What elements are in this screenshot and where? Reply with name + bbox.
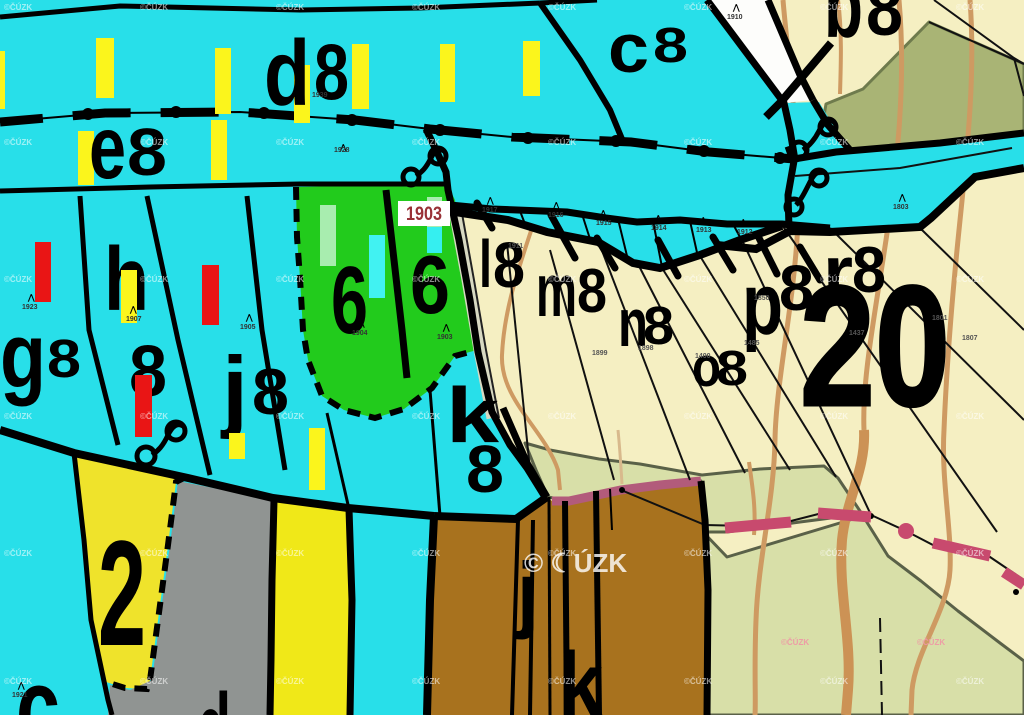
- svg-text:1437: 1437: [849, 330, 865, 337]
- svg-text:1903: 1903: [437, 334, 453, 341]
- svg-text:©ČÚZK: ©ČÚZK: [548, 275, 576, 284]
- svg-text:©ČÚZK: ©ČÚZK: [140, 549, 168, 558]
- svg-text:⋀: ⋀: [699, 216, 707, 225]
- svg-text:⋀: ⋀: [486, 196, 494, 205]
- svg-text:8: 8: [577, 257, 607, 326]
- svg-text:e: e: [89, 97, 126, 197]
- svg-text:©ČÚZK: ©ČÚZK: [412, 138, 440, 147]
- svg-text:©ČÚZK: ©ČÚZK: [412, 275, 440, 284]
- svg-text:©ČÚZK: ©ČÚZK: [140, 138, 168, 147]
- svg-text:1400: 1400: [695, 353, 711, 360]
- svg-text:d: d: [264, 21, 310, 125]
- svg-text:1914: 1914: [651, 225, 667, 232]
- svg-text:⋀: ⋀: [739, 218, 747, 227]
- svg-text:©ČÚZK: ©ČÚZK: [820, 412, 848, 421]
- svg-text:1899: 1899: [592, 350, 608, 357]
- svg-text:⋀: ⋀: [357, 319, 365, 328]
- svg-text:©ČÚZK: ©ČÚZK: [140, 677, 168, 686]
- svg-text:l: l: [479, 227, 492, 302]
- svg-text:1904: 1904: [352, 330, 368, 337]
- svg-text:1910: 1910: [727, 14, 743, 21]
- svg-text:⋀: ⋀: [654, 214, 662, 223]
- svg-text:d: d: [197, 673, 231, 715]
- svg-text:©ČÚZK: ©ČÚZK: [781, 638, 809, 647]
- svg-text:©ČÚZK: ©ČÚZK: [917, 638, 945, 647]
- svg-text:©ČÚZK: ©ČÚZK: [4, 275, 32, 284]
- svg-text:©ČÚZK: ©ČÚZK: [140, 275, 168, 284]
- svg-text:©ČÚZK: ©ČÚZK: [276, 275, 304, 284]
- svg-text:©ČÚZK: ©ČÚZK: [684, 677, 712, 686]
- svg-text:2: 2: [98, 509, 146, 677]
- svg-text:8: 8: [493, 229, 525, 301]
- svg-text:1905: 1905: [240, 324, 256, 331]
- svg-text:©ČÚZK: ©ČÚZK: [276, 677, 304, 686]
- svg-text:8: 8: [466, 432, 504, 507]
- svg-text:©ČÚZK: ©ČÚZK: [412, 549, 440, 558]
- svg-text:1801: 1801: [932, 315, 948, 322]
- svg-text:1915: 1915: [596, 220, 612, 227]
- svg-text:©ČÚZK: ©ČÚZK: [412, 412, 440, 421]
- svg-text:8: 8: [653, 19, 688, 73]
- svg-text:©ČÚZK: ©ČÚZK: [276, 138, 304, 147]
- svg-text:©ČÚZK: ©ČÚZK: [276, 3, 304, 12]
- svg-text:©ČÚZK: ©ČÚZK: [956, 412, 984, 421]
- svg-text:©ČÚZK: ©ČÚZK: [412, 3, 440, 12]
- svg-text:©ČÚZK: ©ČÚZK: [4, 677, 32, 686]
- svg-text:⋀: ⋀: [129, 305, 137, 314]
- svg-text:©ČÚZK: ©ČÚZK: [4, 138, 32, 147]
- svg-text:©ČÚZK: ©ČÚZK: [820, 3, 848, 12]
- svg-text:©ČÚZK: ©ČÚZK: [4, 3, 32, 12]
- svg-text:©ČÚZK: ©ČÚZK: [956, 275, 984, 284]
- svg-text:©ČÚZK: ©ČÚZK: [820, 677, 848, 686]
- svg-text:©ČÚZK: ©ČÚZK: [412, 677, 440, 686]
- svg-text:©ČÚZK: ©ČÚZK: [684, 275, 712, 284]
- svg-text:8: 8: [47, 329, 81, 389]
- svg-text:©ČÚZK: ©ČÚZK: [956, 138, 984, 147]
- svg-text:6: 6: [331, 247, 368, 354]
- svg-text:g: g: [0, 305, 46, 407]
- svg-text:©ČÚZK: ©ČÚZK: [4, 412, 32, 421]
- svg-text:1907: 1907: [126, 316, 142, 323]
- svg-text:1923: 1923: [22, 304, 38, 311]
- svg-text:6: 6: [410, 238, 450, 331]
- svg-text:k: k: [558, 634, 604, 715]
- svg-text:©ČÚZK: ©ČÚZK: [276, 412, 304, 421]
- svg-text:1912: 1912: [737, 229, 753, 236]
- svg-text:8: 8: [127, 115, 167, 190]
- svg-text:©ČÚZK: ©ČÚZK: [684, 138, 712, 147]
- svg-text:1911: 1911: [508, 243, 523, 250]
- svg-text:c: c: [608, 9, 649, 87]
- svg-text:8: 8: [314, 27, 349, 116]
- svg-text:©ČÚZK: ©ČÚZK: [956, 549, 984, 558]
- svg-text:©ČÚZK: ©ČÚZK: [820, 275, 848, 284]
- svg-text:1807: 1807: [962, 335, 978, 342]
- svg-text:1913: 1913: [696, 227, 712, 234]
- svg-text:1921: 1921: [12, 692, 28, 699]
- svg-text:⋀: ⋀: [552, 201, 560, 210]
- svg-text:©ČÚZK: ©ČÚZK: [140, 412, 168, 421]
- svg-text:p: p: [742, 256, 783, 353]
- svg-text:1803: 1803: [893, 204, 909, 211]
- svg-text:©ČÚZK: ©ČÚZK: [820, 138, 848, 147]
- svg-text:1850: 1850: [754, 295, 770, 302]
- svg-text:©ČÚZK: ©ČÚZK: [4, 549, 32, 558]
- svg-text:m: m: [536, 248, 577, 332]
- svg-text:©ČÚZK: ©ČÚZK: [548, 138, 576, 147]
- svg-text:⋀: ⋀: [898, 193, 906, 202]
- svg-text:1485: 1485: [744, 340, 760, 347]
- svg-text:©ČÚZK: ©ČÚZK: [684, 3, 712, 12]
- svg-text:1903: 1903: [406, 204, 442, 225]
- svg-text:j: j: [220, 339, 248, 440]
- svg-text:⋀: ⋀: [732, 3, 740, 12]
- svg-text:1939: 1939: [312, 92, 328, 99]
- svg-text:©ČÚZK: ©ČÚZK: [140, 3, 168, 12]
- svg-text:©ČÚZK: ©ČÚZK: [548, 677, 576, 686]
- svg-text:1917: 1917: [482, 207, 498, 214]
- svg-text:©ČÚZK: ©ČÚZK: [276, 549, 304, 558]
- svg-text:©ČÚZK: ©ČÚZK: [548, 412, 576, 421]
- svg-text:©ČÚZK: ©ČÚZK: [684, 549, 712, 558]
- svg-text:⋀: ⋀: [27, 293, 35, 302]
- svg-text:⋀: ⋀: [442, 323, 450, 332]
- svg-text:©ČÚZK: ©ČÚZK: [820, 549, 848, 558]
- svg-text:©ČÚZK: ©ČÚZK: [684, 412, 712, 421]
- svg-text:1928: 1928: [334, 147, 350, 154]
- svg-text:© ☾ÚZK: © ☾ÚZK: [524, 548, 627, 578]
- svg-text:©ČÚZK: ©ČÚZK: [548, 3, 576, 12]
- svg-text:8: 8: [866, 0, 903, 52]
- svg-text:©ČÚZK: ©ČÚZK: [956, 3, 984, 12]
- svg-text:⋀: ⋀: [599, 209, 607, 218]
- svg-text:⋀: ⋀: [245, 313, 253, 322]
- svg-text:©ČÚZK: ©ČÚZK: [956, 677, 984, 686]
- svg-text:⋀: ⋀: [317, 81, 325, 90]
- svg-text:1916: 1916: [548, 212, 564, 219]
- svg-text:1898: 1898: [638, 345, 654, 352]
